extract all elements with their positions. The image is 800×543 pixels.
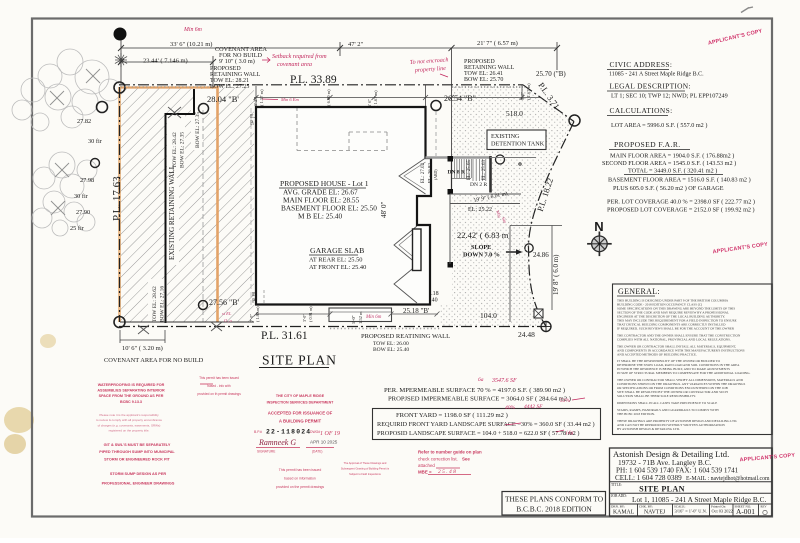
svg-text:SITE PLAN: SITE PLAN (639, 484, 685, 493)
svg-text:Refer to number guide on plan: Refer to number guide on plan (418, 450, 482, 455)
svg-text:( 6.00 m): ( 6.00 m) (326, 89, 331, 106)
svg-text:GARAGE SLAB: GARAGE SLAB (310, 246, 364, 255)
svg-text:P.L. 31.61: P.L. 31.61 (261, 330, 308, 342)
svg-text:27.98: 27.98 (80, 177, 94, 184)
svg-text:4442 SF: 4442 SF (524, 403, 543, 410)
svg-text:27.82: 27.82 (77, 118, 91, 125)
svg-text:LOT AREA = 5996.0 S.F. ( 557: LOT AREA = 5996.0 S.F. ( 557.0 m2 ) (611, 122, 707, 129)
svg-text:BOW EL: 25.40: BOW EL: 25.40 (373, 347, 409, 353)
svg-text:Please note it is the applican: Please note it is the applicant's respon… (99, 413, 159, 417)
svg-text:1 OF 19: 1 OF 19 (320, 431, 340, 437)
svg-text:40%: 40% (505, 404, 516, 411)
svg-text:BOW EL: 27.25: BOW EL: 27.25 (210, 84, 249, 90)
svg-text:22-118024: 22-118024 (266, 429, 311, 436)
svg-text:51%: 51% (560, 398, 571, 404)
svg-text:KAMAL: KAMAL (613, 510, 635, 516)
svg-text:AND ACCEPTED METHODS OF BUILDI: AND ACCEPTED METHODS OF BUILDING PRACTIC… (617, 352, 697, 356)
svg-text:P.L. 17.63: P.L. 17.63 (111, 176, 123, 221)
svg-text:EXISTING: EXISTING (491, 133, 520, 140)
svg-text:THE BCBC 2018 EDITION.: THE BCBC 2018 EDITION. (617, 412, 655, 416)
svg-text:st EL: st EL (222, 311, 232, 316)
svg-text:30 fir: 30 fir (74, 193, 89, 200)
svg-text:SECOND FLOOR AREA = 1545.0 S: SECOND FLOOR AREA = 1545.0 S.F. ( 143.53… (602, 160, 736, 167)
svg-text:MAIN FLOOR AREA = 1904.0 S.: MAIN FLOOR AREA = 1904.0 S.F. ( 176.88m2… (610, 153, 734, 160)
svg-text:SITE PLAN: SITE PLAN (262, 353, 337, 368)
svg-text:( 1.57 m): ( 1.57 m) (259, 89, 264, 106)
svg-text:LEGAL DESCRIPTION:: LEGAL DESCRIPTION: (610, 82, 691, 91)
svg-text:THE CITY OF MAPLE RIDGE: THE CITY OF MAPLE RIDGE (276, 394, 325, 398)
svg-text:BOW EL: 27.35: BOW EL: 27.35 (195, 112, 201, 148)
svg-text:24.86: 24.86 (533, 251, 549, 259)
svg-text:PROPOSID LANDSCAPE SURFACE =: PROPOSID LANDSCAPE SURFACE = 104.0 + 518… (377, 430, 579, 437)
svg-text:TOTAL = 3449.0 S.F. ( 320.41: TOTAL = 3449.0 S.F. ( 320.41 m2 ) (628, 168, 717, 175)
svg-text:1.52 m: 1.52 m (358, 311, 363, 324)
svg-text:Min 6m: Min 6m (183, 27, 202, 33)
svg-text:STORM SUMP DESIGN AS PER: STORM SUMP DESIGN AS PER (110, 472, 167, 476)
svg-text:DOWN 7.0 %: DOWN 7.0 % (463, 252, 500, 259)
svg-text:SIGNATURE: SIGNATURE (257, 450, 275, 454)
svg-text:Oct 03 2022: Oct 03 2022 (712, 509, 733, 514)
svg-text:BASEMENT FLOOR AREA = 151: BASEMENT FLOOR AREA = 1516.0 S.F. ( 140.… (608, 177, 751, 184)
svg-text:5' 2": 5' 2" (253, 98, 258, 106)
svg-text:27.56 "B': 27.56 "B' (209, 298, 240, 307)
svg-text:Lot 1, 11085 - 241 A Street Ma: Lot 1, 11085 - 241 A Street Maple Ridge … (632, 495, 766, 504)
svg-text:23.44' ( 7.146 m): 23.44' ( 7.146 m) (143, 58, 188, 65)
svg-text:5'-0": 5'-0" (351, 315, 356, 324)
svg-text:PROFESSIONAL ENGINEER DRAWINGS: PROFESSIONAL ENGINEER DRAWINGS (102, 482, 175, 486)
svg-text:CALCULATIONS:: CALCULATIONS: (610, 106, 673, 115)
svg-text:TOW EL: 28.42: TOW EL: 28.42 (172, 132, 178, 168)
svg-text:CHK. BY:: CHK. BY: (639, 505, 653, 509)
svg-text:DETENTION TANK: DETENTION TANK (491, 141, 545, 148)
svg-text:19' 8" ( 6.0 m): 19' 8" ( 6.0 m) (552, 254, 560, 295)
svg-text:BCBC 9.13.3: BCBC 9.13.3 (120, 400, 142, 404)
svg-text:(DATE): (DATE) (312, 450, 322, 454)
svg-text:30 fir: 30 fir (88, 138, 103, 145)
svg-text:PER. MPERMEABLE SURFACE 70 % =: PER. MPERMEABLE SURFACE 70 % = 4197.0 S.… (384, 387, 565, 394)
svg-text:BOW EL: 25.70: BOW EL: 25.70 (464, 77, 503, 83)
svg-text:TITLE:: TITLE: (611, 483, 622, 487)
svg-text:EXISTING RETAINING WALL: EXISTING RETAINING WALL (168, 165, 176, 260)
svg-text:3547.6 SF: 3547.6 SF (491, 377, 517, 384)
svg-text:PROPOSED F.A.R.: PROPOSED F.A.R. (614, 140, 681, 149)
svg-text:PROPOSED LOT COVERAGE = 2152: PROPOSED LOT COVERAGE = 2152.0 SF ( 199.… (607, 207, 755, 214)
svg-text:O_a: O_a (224, 318, 232, 323)
svg-text:APR 10 2025: APR 10 2025 (310, 440, 338, 445)
svg-text:11085 - 241 A Street Maple Rid: 11085 - 241 A Street Maple Ridge B.C. (609, 72, 704, 78)
svg-text:104.0: 104.0 (480, 311, 497, 320)
svg-text:M B EL: 25.40: M B EL: 25.40 (298, 212, 343, 221)
svg-text:CELL: 1 604 728 0389: CELL: 1 604 728 0389 (615, 474, 682, 482)
svg-text:provided on th permit: provided on th permit drawings (197, 392, 241, 396)
svg-text:COVENANT AREA FOR NO BUILD: COVENANT AREA FOR NO BUILD (104, 357, 204, 364)
svg-text:BY ASTONISH DESIGN & DETAILING: BY ASTONISH DESIGN & DETAILING LTD. (617, 427, 680, 431)
svg-text:PER. LOT COVERAGE 40.0 % = 239: PER. LOT COVERAGE 40.0 % = 2398.0 SF ( 2… (607, 199, 755, 206)
svg-text:CIVIC ADDRESS:: CIVIC ADDRESS: (610, 60, 673, 69)
svg-text:27.90: 27.90 (76, 209, 90, 216)
svg-text:( 1.67 m): ( 1.67 m) (373, 90, 378, 107)
svg-text:25 fir: 25 fir (70, 225, 85, 232)
svg-text:3/16" = 1'-0" U.N.: 3/16" = 1'-0" U.N. (675, 509, 707, 514)
svg-text:INSPECTION SERVICES DEPARTMENT: INSPECTION SERVICES DEPARTMENT (267, 401, 335, 405)
svg-text:A BUILDING PERMIT: A BUILDING PERMIT (279, 419, 322, 424)
svg-text:518.0: 518.0 (506, 109, 523, 118)
svg-text:registered on the property tit: registered on the property title. (109, 429, 150, 433)
svg-text:EL: 25.65: EL: 25.65 (467, 160, 472, 180)
svg-text:47' 2": 47' 2" (348, 41, 364, 48)
svg-text:EL: 27.02: EL: 27.02 (421, 163, 426, 183)
svg-text:ASSEMBLIES SEPARATING INTERIOR: ASSEMBLIES SEPARATING INTERIOR (97, 389, 165, 393)
svg-text:Setback required from: Setback required from (272, 53, 327, 60)
svg-text:DN 8 R: DN 8 R (448, 170, 466, 176)
svg-text:TOW EL: 28.62: TOW EL: 28.62 (152, 286, 158, 322)
svg-text:DWG#: DWG# (310, 430, 320, 434)
svg-text:PLUS 605.0 S.F. ( 56.20 m2 ): PLUS 605.0 S.F. ( 56.20 m2 ) OF GARAGE (613, 185, 724, 192)
svg-text:IN SIZE OF STRUCTURAL MEMBERS: IN SIZE OF STRUCTURAL MEMBERS TO COMPENS… (617, 371, 750, 375)
svg-text:GENERAL:: GENERAL: (618, 287, 660, 296)
svg-text:E-MAIL : navtejdhot@hotmail.co: E-MAIL : navtejdhot@hotmail.com (686, 476, 770, 482)
svg-text:REQUIRID FRONT YARD LANDSCAPE: REQUIRID FRONT YARD LANDSCAPE SURFACE =3… (377, 421, 595, 428)
svg-text:covenant area: covenant area (277, 61, 312, 68)
svg-text:EL: 26.82: EL: 26.82 (429, 163, 434, 183)
svg-text:24.48: 24.48 (518, 330, 535, 339)
svg-text:REV: REV (761, 505, 768, 509)
svg-text:FRONT YARD = 1198.0 SF ( 11: FRONT YARD = 1198.0 SF ( 111.29 m2 ) (396, 412, 508, 419)
svg-text:check correction list.: check correction list. (418, 457, 458, 462)
svg-text:Min 6 Em: Min 6 Em (280, 97, 299, 102)
svg-text:based - info with: based - info with (207, 384, 230, 388)
svg-text:to review & comply with all pr: to review & comply with all property enc… (96, 418, 162, 422)
svg-text:IF REQUIRED. SUCH REVIEWS SHAL: IF REQUIRED. SUCH REVIEWS SHALL BE FOR T… (617, 327, 735, 331)
svg-text:PROPJSED IMPERMEABLE SURFACE =: PROPJSED IMPERMEABLE SURFACE = 3064.0 SF… (388, 396, 571, 403)
svg-text:PROPOSED REATINING WALL: PROPOSED REATINING WALL (361, 333, 450, 340)
svg-text:ACCEPTED FOR ISSUANCE OF: ACCEPTED FOR ISSUANCE OF (268, 411, 333, 416)
svg-text:See: See (462, 457, 470, 462)
svg-text:Ramneek G: Ramneek G (258, 438, 296, 447)
svg-text:48' 0": 48' 0" (380, 201, 388, 218)
svg-text:DN 2 R: DN 2 R (470, 182, 487, 188)
svg-text:WATERPROOFING IS REQUIRED FOR: WATERPROOFING IS REQUIRED FOR (98, 383, 165, 387)
svg-text:Subsequent Granting of Buildin: Subsequent Granting of Building Permit i… (341, 467, 390, 471)
svg-text:THESE PLANS CONFORM TO: THESE PLANS CONFORM TO (505, 495, 604, 504)
svg-text:Min 6m: Min 6m (365, 315, 382, 320)
svg-text:7'-0": 7'-0" (249, 314, 254, 322)
svg-text:28.04 "B': 28.04 "B' (207, 94, 239, 104)
svg-text:2 5 . 4 8: 2 5 . 4 8 (438, 468, 456, 475)
svg-text:This permit has been issued: This permit has been issued (199, 376, 239, 380)
svg-text:( 0.91 m): ( 0.91 m) (308, 306, 313, 322)
svg-text:6a: 6a (478, 377, 484, 383)
svg-text:10' 6" ( 3.20 m): 10' 6" ( 3.20 m) (122, 345, 163, 352)
svg-text:AT REAR EL: 25.50: AT REAR EL: 25.50 (309, 257, 363, 264)
svg-text:attached: attached (418, 463, 435, 468)
svg-text:B.P.#: B.P.# (254, 430, 262, 434)
svg-text:(ABD): (ABD) (434, 169, 438, 180)
svg-text:A-001: A-001 (736, 507, 755, 516)
svg-text:The Approval of These Drawings: The Approval of These Drawings and (344, 461, 387, 465)
svg-text:Subject to Field Inspections: Subject to Field Inspections (349, 472, 381, 476)
svg-text:P.L. 33.89: P.L. 33.89 (290, 74, 337, 86)
svg-text:STORM OR ENGINEERED ROCK PIT: STORM OR ENGINEERED ROCK PIT (104, 457, 170, 461)
svg-text:provided on the permit drawing: provided on the permit drawings (276, 485, 325, 489)
svg-text:(4g: (4g (566, 429, 574, 436)
svg-text:9' 10" ( 3.0 m): 9' 10" ( 3.0 m) (219, 58, 255, 65)
svg-text:DIMENSIONS SHALL IN ALL CASES: DIMENSIONS SHALL IN ALL CASES TAKE PRECE… (617, 401, 717, 405)
svg-text:B.C.B.C. 2018 EDITION: B.C.B.C. 2018 EDITION (516, 505, 592, 514)
svg-text:33' 6" (10.21 m): 33' 6" (10.21 m) (170, 41, 212, 48)
svg-text:NAVTEJ: NAVTEJ (644, 510, 666, 516)
svg-text:3'-0": 3'-0" (302, 314, 307, 322)
svg-text:LT 1; SEC 10; TWP 12; NWD; PL: LT 1; SEC 10; TWP 12; NWD; PL EPP107249 (611, 93, 728, 100)
svg-text:of charges (e.g. covenants, ea: of charges (e.g. covenants, easements, S… (98, 423, 161, 427)
svg-text:MBE =: MBE = (418, 470, 432, 475)
svg-text:22.42' ( 6.83 m: 22.42' ( 6.83 m (457, 230, 509, 240)
svg-text:This permit has been issued: This permit has been issued (279, 468, 322, 472)
svg-text:21' 7" ( 6.57 m): 21' 7" ( 6.57 m) (477, 40, 518, 47)
svg-text:SLOPE: SLOPE (471, 244, 491, 251)
svg-text:SPACE FROM THE GROUND AS PER: SPACE FROM THE GROUND AS PER (99, 394, 164, 398)
svg-text:( 1.80 m): ( 1.80 m) (255, 306, 260, 322)
svg-text:EL: 25.22: EL: 25.22 (468, 207, 492, 213)
svg-text:based on information: based on information (284, 477, 316, 481)
svg-text:EL: 25.63: EL: 25.63 (482, 160, 487, 180)
svg-text:25.70 ("B): 25.70 ("B) (536, 70, 566, 78)
svg-text:AT FRONT EL: 25.40: AT FRONT EL: 25.40 (309, 264, 366, 271)
svg-text:DRN. BY:: DRN. BY: (611, 505, 625, 509)
svg-text:PIPED THROUGH SUMP INTO MUNICI: PIPED THROUGH SUMP INTO MUNICIPAL (99, 450, 175, 454)
svg-text:GIT & SWL'S MUST BE SEPARATELY: GIT & SWL'S MUST BE SEPARATELY (104, 443, 171, 447)
svg-text:SOLUTION SHALL BE THEIR SOLE: SOLUTION SHALL BE THEIR SOLE RESPONSIBIL… (617, 394, 696, 398)
svg-text:5' 6": 5' 6" (367, 99, 372, 107)
svg-text:BOW EL: 27,16: BOW EL: 27,16 (160, 286, 166, 322)
svg-text:JOB ADD:: JOB ADD: (611, 494, 627, 498)
svg-text:N: N (594, 219, 603, 234)
svg-text:BOW EL: 27.35: BOW EL: 27.35 (180, 132, 186, 168)
